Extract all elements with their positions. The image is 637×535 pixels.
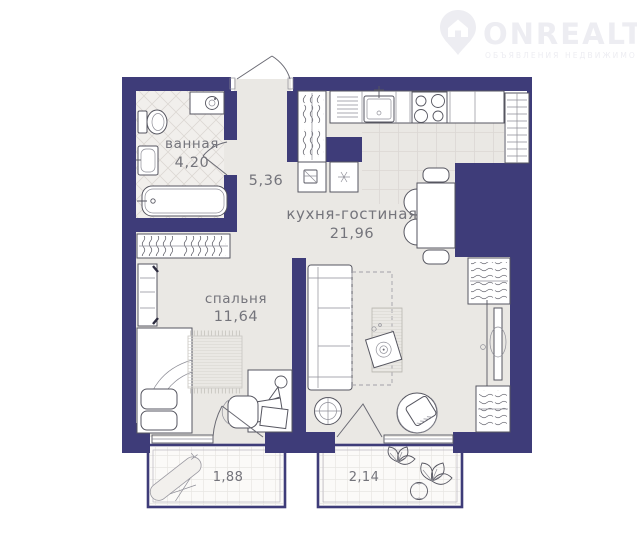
fridge	[330, 162, 358, 192]
side-table	[315, 398, 342, 425]
watermark-tagline: ОБЪЯВЛЕНИЯ НЕДВИЖИМОСТИ	[485, 51, 637, 60]
wardrobe	[137, 234, 230, 258]
desk-chair	[222, 396, 258, 428]
wall-bottom-right	[453, 432, 532, 453]
bed	[137, 328, 192, 433]
hallway-closet	[298, 91, 326, 162]
floor-plan-page: ванная 4,20 5,36 кухня-гостиная 21,96 сп…	[0, 0, 637, 535]
sofa	[308, 265, 352, 390]
wall-stub-kitchen	[326, 137, 362, 162]
wall-bathroom-right-upper	[224, 91, 237, 140]
shelving-unit	[505, 93, 529, 163]
shoe-cabinet	[298, 162, 326, 192]
wall-right-block	[455, 163, 532, 257]
wardrobe	[476, 386, 510, 432]
dining-chair	[423, 168, 449, 182]
dining-chair	[423, 250, 449, 264]
balcony-left-area: 1,88	[213, 470, 244, 485]
watermark: ONREALT ОБЪЯВЛЕНИЯ НЕДВИЖИМОСТИ	[440, 10, 637, 60]
wall-bedroom-divider	[292, 258, 306, 437]
hallway-area: 5,36	[249, 173, 284, 189]
stove	[412, 92, 447, 123]
kitchen-tile-grid	[362, 123, 504, 163]
wall-top-right	[293, 77, 532, 91]
bedroom-area: 11,64	[214, 309, 259, 325]
onrealt-pin-icon	[440, 10, 476, 55]
floor-plan: ванная 4,20 5,36 кухня-гостиная 21,96 сп…	[0, 0, 637, 535]
papers	[260, 406, 288, 428]
kitchen-living-area: 21,96	[330, 226, 375, 242]
wall-bathroom-bottom	[122, 218, 237, 232]
wall-right-lower	[510, 247, 532, 453]
wall-top-left	[122, 77, 231, 91]
bedroom-label: спальня	[205, 291, 267, 307]
bathtub	[137, 186, 227, 216]
armchair	[397, 393, 437, 433]
dining-table	[417, 183, 455, 248]
bathroom-area: 4,20	[175, 155, 210, 171]
bathroom-door-threshold	[224, 140, 237, 175]
entrance-threshold	[234, 79, 291, 91]
rug	[188, 331, 242, 394]
bathroom-label: ванная	[165, 136, 219, 152]
kitchen-living-label: кухня-гостиная	[286, 205, 417, 223]
balcony-right	[318, 445, 462, 507]
bathroom-sink	[136, 146, 158, 175]
wall-left	[122, 77, 136, 423]
toilet	[138, 110, 167, 134]
tv-unit	[138, 264, 158, 326]
washing-machine	[190, 92, 224, 114]
wall-closet	[287, 91, 298, 162]
balcony-right-area: 2,14	[349, 470, 380, 485]
wardrobe	[468, 258, 510, 304]
watermark-brand: ONREALT	[483, 17, 637, 51]
